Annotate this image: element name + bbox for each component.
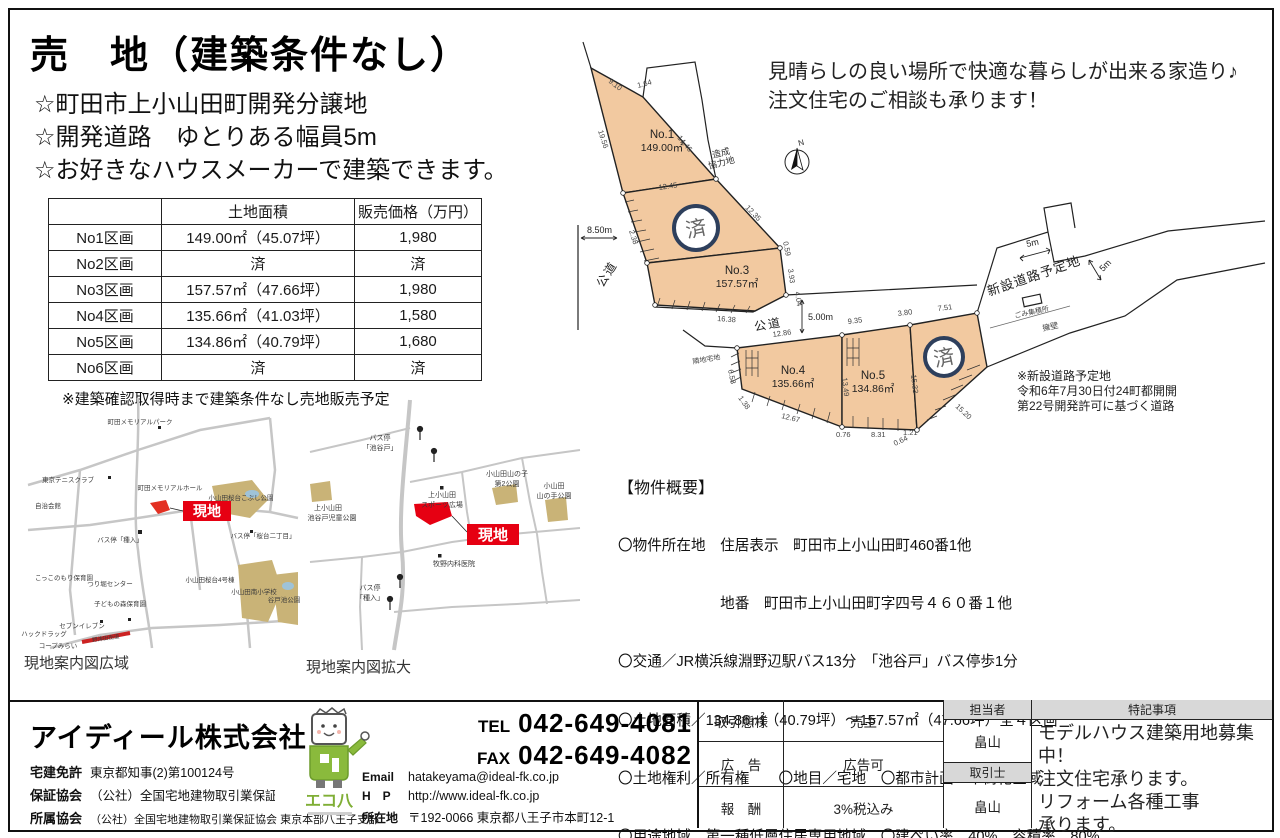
contact-row: Emailhatakeyama@ideal-fk.co.jp <box>362 770 614 784</box>
lot-name: No1区画 <box>49 225 162 251</box>
map-label: 「種入」 <box>356 594 384 602</box>
fax-label: FAX <box>477 749 510 768</box>
deal-label: 広 告 <box>699 742 784 787</box>
map-label: 第2公園 <box>495 479 520 488</box>
license-value: （公社）全国宅地建物取引業保証協会 <box>90 789 275 803</box>
contact-value: http://www.ideal-fk.co.jp <box>408 789 539 803</box>
retaining-wall-label: 擁壁 <box>1041 320 1059 333</box>
table-row: No2区画済済 <box>49 251 482 277</box>
note-line: 注文住宅承ります。 <box>1038 768 1266 791</box>
map-zoom: 現地 バス停 「池谷戸」 上小山田 スポーツ広場 小山田山の子 第2公園 小山田… <box>302 392 587 652</box>
lot-5-area: 134.86㎡ <box>852 383 895 395</box>
map-label: 山の手公園 <box>537 491 572 500</box>
table-row: No4区画135.66㎡（41.03坪）1,580 <box>49 303 482 329</box>
contact-value: hatakeyama@ideal-fk.co.jp <box>408 770 559 784</box>
mascot-name: エコ八 <box>305 793 354 810</box>
sold-circle-lot2: 済 <box>674 206 718 250</box>
lot-price: 1,980 <box>355 277 482 303</box>
lot-4-area: 135.66㎡ <box>772 378 815 390</box>
deal-label: 取引態様 <box>699 700 784 742</box>
plan-note-line: 令和6年7月30日付24町都開開 <box>1017 383 1177 398</box>
site-label: 現地 <box>478 526 508 544</box>
map-label: ハックドラッグ <box>21 629 67 638</box>
overview-line: 〇物件所在地 住居表示 町田市上小山田町460番1他 <box>618 537 1264 556</box>
mascot-character <box>310 708 369 788</box>
dim-label: 8.31 <box>871 430 886 439</box>
map-pond <box>282 582 294 590</box>
contact-row: H Phttp://www.ideal-fk.co.jp <box>362 787 614 804</box>
mascot-tagline-placeholder <box>308 812 352 815</box>
map-wide: 野津田街道 現地 町田メモリアルパーク 東京テニスクラブ 町田メモリアルホール … <box>20 390 300 652</box>
sold-circle-lot6: 済 <box>925 338 963 376</box>
map-label: 池谷戸児童公園 <box>308 513 357 522</box>
agent-header: 取引士 <box>944 763 1032 783</box>
deal-info-table: 取引態様 売主 広 告 広告可 報 酬 3%税込み 担当者 畠山 取引士 畠山 … <box>697 700 1272 828</box>
lot-1-area: 149.00㎡ <box>641 142 684 154</box>
lot-1-number: No.1 <box>650 129 674 141</box>
dim-label: 0.76 <box>836 430 851 439</box>
map-label: 上小山田 <box>314 503 342 512</box>
bullet-line: ☆町田市上小山田町開発分譲地 <box>34 88 508 121</box>
deal-value: 売主 <box>784 700 944 742</box>
lot-area: 済 <box>162 251 355 277</box>
map-label: 子どもの森保育園 <box>94 599 146 608</box>
agent-name: 畠山 <box>944 783 1032 828</box>
map-label: 谷戸池公園 <box>268 595 300 604</box>
map-roads <box>310 400 580 650</box>
map-label: 町田メモリアルホール <box>138 484 203 492</box>
lot-3-area: 157.57㎡ <box>716 278 759 290</box>
garbage-station-label: ごみ集積所 <box>1014 304 1050 320</box>
tel-number: 042-649-4081 <box>518 708 692 738</box>
note-line: 承ります。 <box>1038 814 1266 837</box>
plan-note-line: 第22号開発許可に基づく道路 <box>1017 398 1174 413</box>
lot-price: 1,980 <box>355 225 482 251</box>
contact-label: Email <box>362 770 408 784</box>
dim-label: 6.58 <box>726 369 738 385</box>
deal-value: 3%税込み <box>784 787 944 828</box>
header-area: 土地面積 <box>162 199 355 225</box>
plan-note-line: ※新設道路予定地 <box>1017 368 1111 383</box>
license-label: 宅建免許 <box>30 765 82 780</box>
map-label: 上小山田 <box>428 490 456 499</box>
map-label: バス停「種入」 <box>97 535 143 544</box>
map-label: 小山田南小学校 <box>231 587 277 596</box>
table-row: No1区画149.00㎡（45.07坪）1,980 <box>49 225 482 251</box>
adjacent-land-label: 隣地宅地 <box>692 352 721 366</box>
lot-name: No3区画 <box>49 277 162 303</box>
table-row: No6区画済済 <box>49 355 482 381</box>
overview-heading: 【物件概要】 <box>618 479 1264 498</box>
price-table-header-row: 土地面積 販売価格（万円） <box>49 199 482 225</box>
flyer-page: 売 地（建築条件なし） ☆町田市上小山田町開発分譲地 ☆開発道路 ゆとりある幅員… <box>0 0 1280 838</box>
map-label: コープみらい <box>39 642 78 650</box>
lot-5-number: No.5 <box>861 370 885 382</box>
note-line: モデルハウス建築用地募集中！ <box>1038 722 1266 768</box>
contact-value: 〒192-0066 東京都八王子市本町12-1 <box>408 811 614 825</box>
tel-row: TEL042-649-4081 <box>470 708 692 739</box>
new-road-width-5m: 5m <box>1025 237 1039 249</box>
table-row: No3区画157.57㎡（47.66坪）1,980 <box>49 277 482 303</box>
tel-label: TEL <box>478 717 510 736</box>
dim-label: 1.64 <box>636 77 652 89</box>
map-label: スポーツ広場 <box>421 500 463 509</box>
site-plan: 済 済 No.1 149.00㎡ No.3 157.57㎡ No.4 135.6… <box>565 28 1275 446</box>
dim-label: 0.59 <box>781 241 793 257</box>
dim-label: 1.38 <box>736 394 752 411</box>
header-empty <box>49 199 162 225</box>
dim-label: 12.86 <box>772 327 792 339</box>
map-label: セブンイレブン <box>59 621 105 630</box>
map-zoom-caption: 現地案内図拡大 <box>306 656 411 677</box>
lot-area: 149.00㎡（45.07坪） <box>162 225 355 251</box>
site-label: 現地 <box>193 503 221 519</box>
lot-area: 135.66㎡（41.03坪） <box>162 303 355 329</box>
overview-line: 地番 町田市上小山田町字四号４６０番１他 <box>618 595 1264 614</box>
bullet-line: ☆開発道路 ゆとりある幅員5m <box>34 121 508 154</box>
staff-header: 担当者 <box>944 700 1032 720</box>
contact-block: Emailhatakeyama@ideal-fk.co.jp H Phttp:/… <box>362 770 614 826</box>
notes-body: モデルハウス建築用地募集中！ 注文住宅承ります。 リフォーム各種工事 承ります。 <box>1032 720 1272 828</box>
lot-name: No5区画 <box>49 329 162 355</box>
road-width-850: 8.50m <box>587 225 612 235</box>
lot-name: No6区画 <box>49 355 162 381</box>
dim-label: 16.38 <box>717 314 736 324</box>
road-width-500: 5.00m <box>808 312 833 322</box>
dim-label: 15.20 <box>954 402 974 421</box>
contact-label: 所在地 <box>362 809 408 826</box>
table-row: No5区画134.86㎡（40.79坪）1,680 <box>49 329 482 355</box>
price-table: 土地面積 販売価格（万円） No1区画149.00㎡（45.07坪）1,980 … <box>48 198 482 381</box>
map-label: 「池谷戸」 <box>363 443 398 452</box>
map-label: つり堀センター <box>87 579 133 588</box>
map-label: 東京テニスクラブ <box>42 475 95 484</box>
company-name: アイディール株式会社 <box>30 716 307 755</box>
lot-price: 済 <box>355 355 482 381</box>
site-marker-blob <box>150 500 170 514</box>
license-value: 東京都知事(2)第100124号 <box>90 766 235 780</box>
map-label: 自治会館 <box>35 501 62 510</box>
lot-price: 1,580 <box>355 303 482 329</box>
map-label: こっこのもり保育園 <box>35 573 93 582</box>
lot-name: No4区画 <box>49 303 162 329</box>
deal-value: 広告可 <box>784 742 944 787</box>
dim-label: 4.04 <box>793 291 804 307</box>
note-line: リフォーム各種工事 <box>1038 791 1266 814</box>
overview-line: 〇交通／JR横浜線淵野辺駅バス13分 「池谷戸」バス停歩1分 <box>618 653 1264 672</box>
lot-3-number: No.3 <box>725 265 749 277</box>
notes-header: 特記事項 <box>1032 700 1272 720</box>
license-label: 保証協会 <box>30 788 82 803</box>
lot-area: 134.86㎡（40.79坪） <box>162 329 355 355</box>
map-label: 小山田 <box>544 481 565 490</box>
map-label: 小山田桜台4号棟 <box>185 575 235 584</box>
road-label-left: 公道 <box>594 258 621 289</box>
dim-label: 7.51 <box>937 302 953 313</box>
fax-number: 042-649-4082 <box>518 740 692 770</box>
map-label: バス停 <box>370 433 391 442</box>
fax-row: FAX042-649-4082 <box>470 740 692 771</box>
lot-area: 済 <box>162 355 355 381</box>
map-label: 小山田桜台こぶし公園 <box>209 493 274 502</box>
dim-label: 9.35 <box>847 315 863 326</box>
bullet-line: ☆お好きなハウスメーカーで建築できます。 <box>34 154 508 187</box>
new-road-label: 新設道路予定地 <box>985 253 1083 299</box>
deal-label: 報 酬 <box>699 787 784 828</box>
map-label: 牧野内科医院 <box>433 559 475 568</box>
map-label: 町田メモリアルパーク <box>108 418 173 426</box>
lot-4-number: No.4 <box>781 365 806 377</box>
new-road-width-5m: 5m <box>1097 257 1113 273</box>
lot-price: 1,680 <box>355 329 482 355</box>
leader-line <box>170 508 183 511</box>
staff-name: 畠山 <box>944 720 1032 763</box>
dim-label: 3.93 <box>786 268 797 284</box>
lot-name: No2区画 <box>49 251 162 277</box>
page-title: 売 地（建築条件なし） <box>30 24 470 79</box>
contact-row: 所在地〒192-0066 東京都八王子市本町12-1 <box>362 807 614 826</box>
lot-price: 済 <box>355 251 482 277</box>
contact-label: H P <box>362 787 408 804</box>
map-label: 小山田山の子 <box>486 469 528 478</box>
map-label: バス停 <box>360 583 381 592</box>
feature-bullets: ☆町田市上小山田町開発分譲地 ☆開発道路 ゆとりある幅員5m ☆お好きなハウスメ… <box>34 88 508 187</box>
dim-label: 12.67 <box>781 411 801 424</box>
map-wide-caption: 現地案内図広域 <box>24 652 129 673</box>
dim-label: 3.80 <box>897 307 913 318</box>
north-compass-icon: N <box>785 138 809 174</box>
license-label: 所属協会 <box>30 811 82 826</box>
header-price: 販売価格（万円） <box>355 199 482 225</box>
lot-area: 157.57㎡（47.66坪） <box>162 277 355 303</box>
leader-line <box>452 516 467 532</box>
north-label: N <box>797 138 805 148</box>
license-row: 保証協会（公社）全国宅地建物取引業保証協会 <box>30 785 275 804</box>
map-label: バス停「桜台二丁目」 <box>231 531 296 540</box>
